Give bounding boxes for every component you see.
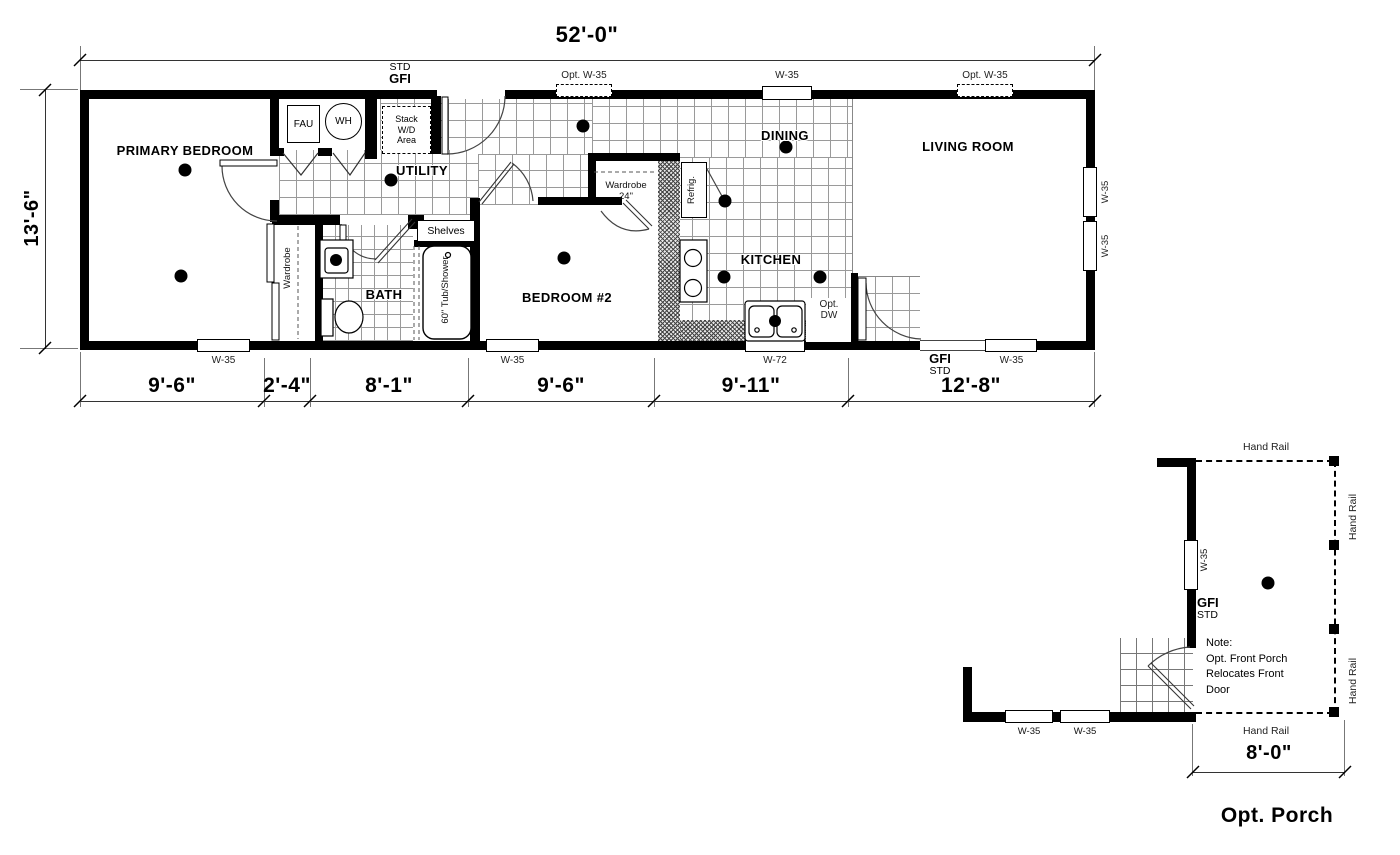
- gfi-std-label: STD: [916, 365, 964, 377]
- dim-segment-1: 9'-6": [92, 374, 252, 398]
- room-label-bath: BATH: [352, 287, 416, 302]
- window-label-w35-bottom3: W-35: [986, 355, 1037, 366]
- window-label-w35-right-lower: W-35: [1100, 226, 1112, 266]
- wardrobe-label-primary: Wardrobe: [282, 223, 296, 313]
- dim-tick: [1339, 766, 1351, 778]
- porch-dim-label: 8'-0": [1194, 742, 1344, 765]
- porch-door-leaf: [1148, 666, 1191, 709]
- bedroom2-door-leaf: [479, 162, 511, 202]
- porch-window-label-w35-bottom1: W-35: [1005, 726, 1053, 737]
- room-label-living-room: LIVING ROOM: [907, 139, 1029, 154]
- dim-tick: [1089, 54, 1101, 66]
- wardrobe24-door-leaf: [623, 203, 649, 229]
- porch-title: Opt. Porch: [1192, 804, 1362, 828]
- front-door-frame: [442, 97, 448, 154]
- range-burner-1: [685, 250, 702, 267]
- dim-tick: [648, 395, 660, 407]
- room-label-primary-bedroom: PRIMARY BEDROOM: [104, 143, 266, 158]
- porch-note: Note: Opt. Front Porch Relocates Front D…: [1206, 636, 1318, 698]
- dim-segment-3: 8'-1": [309, 374, 469, 398]
- window-label-w35: W-35: [762, 70, 812, 81]
- gfi-label: GFI: [1197, 597, 1237, 609]
- primary-door-arc: [222, 166, 277, 221]
- gfi-callout-bottom: GFI STD: [916, 353, 964, 377]
- bifold-door-1: [283, 153, 318, 175]
- porch-handrail-label-top: Hand Rail: [1196, 441, 1336, 453]
- light-primary-1: [179, 164, 192, 177]
- wardrobe-slider-2: [272, 283, 279, 340]
- porch-handrail-label-bottom: Hand Rail: [1196, 725, 1336, 737]
- gfi-callout-top: STD GFI: [377, 61, 423, 85]
- light-kitchen-1: [719, 195, 732, 208]
- dim-segment-4: 9'-6": [481, 374, 641, 398]
- window-label-opt-w35: Opt. W-35: [555, 70, 613, 81]
- window-label-w35-bottom2: W-35: [486, 355, 539, 366]
- shelves-door-leaf: [375, 219, 412, 260]
- refrig-door-line: [707, 169, 723, 198]
- light-kitchen-3: [814, 271, 827, 284]
- bedroom2-door-arc: [512, 163, 533, 201]
- gfi-std-label: STD: [1197, 609, 1237, 621]
- porch-window-label-w35-bottom2: W-35: [1060, 726, 1110, 737]
- room-label-kitchen: KITCHEN: [725, 252, 817, 267]
- porch-handrail-label-right-upper: Hand Rail: [1347, 485, 1359, 549]
- dim-tick: [74, 395, 86, 407]
- dim-segment-5: 9'-11": [671, 374, 831, 398]
- dim-tick: [1187, 766, 1199, 778]
- porch-door-arc: [1148, 647, 1190, 666]
- toilet-tank: [321, 299, 333, 336]
- gfi-label: GFI: [377, 73, 423, 85]
- wardrobe-slider-1: [267, 224, 274, 282]
- dim-height-label: 13'-6": [21, 171, 45, 265]
- porch-handrail-label-right-lower: Hand Rail: [1347, 649, 1359, 713]
- floor-plan-canvas: FAU WH Stack W/D Area Shelves: [0, 0, 1400, 855]
- tub-shower-label: 60" Tub/Shower: [440, 245, 456, 335]
- bath-faucet-dot: [330, 254, 342, 266]
- dim-tick: [39, 342, 51, 354]
- dim-tick: [39, 84, 51, 96]
- dim-segment-6: 12'-8": [891, 374, 1051, 398]
- bifold-door-2: [333, 153, 365, 175]
- porch-window-label-w35-left: W-35: [1199, 540, 1211, 580]
- entry-door-leaf: [858, 278, 866, 340]
- window-label-w35-right-upper: W-35: [1100, 172, 1112, 212]
- wardrobe24-door-arc: [601, 211, 649, 231]
- window-label-opt-w35: Opt. W-35: [956, 70, 1014, 81]
- range-burner-2: [685, 280, 702, 297]
- entry-door-arc: [866, 283, 921, 339]
- dim-width-label: 52'-0": [487, 22, 687, 48]
- opt-dw-label: Opt. DW: [809, 299, 849, 321]
- dim-tick: [842, 395, 854, 407]
- dim-tick: [1089, 395, 1101, 407]
- room-label-utility: UTILITY: [378, 163, 466, 178]
- wardrobe24-width-label: 24": [601, 191, 651, 202]
- front-door-arc: [447, 96, 505, 154]
- window-label-w35-bottom1: W-35: [197, 355, 250, 366]
- room-label-dining: DINING: [748, 128, 822, 143]
- dim-tick: [74, 54, 86, 66]
- light-primary-2: [175, 270, 188, 283]
- gfi-label: GFI: [916, 353, 964, 365]
- porch-gfi-callout: GFI STD: [1197, 597, 1237, 621]
- window-label-w72: W-72: [747, 355, 803, 366]
- refrig-label: Refrig.: [686, 155, 700, 225]
- wardrobe24-label: Wardrobe: [597, 180, 655, 191]
- room-label-bedroom2: BEDROOM #2: [494, 290, 640, 305]
- light-bedroom2: [558, 252, 571, 265]
- primary-door-leaf: [220, 160, 277, 166]
- light-hall: [577, 120, 590, 133]
- kitchen-faucet-dot: [769, 315, 781, 327]
- plan-lineart: [0, 0, 1400, 855]
- light-kitchen-2: [718, 271, 731, 284]
- toilet-bowl: [335, 301, 363, 333]
- light-porch: [1262, 577, 1275, 590]
